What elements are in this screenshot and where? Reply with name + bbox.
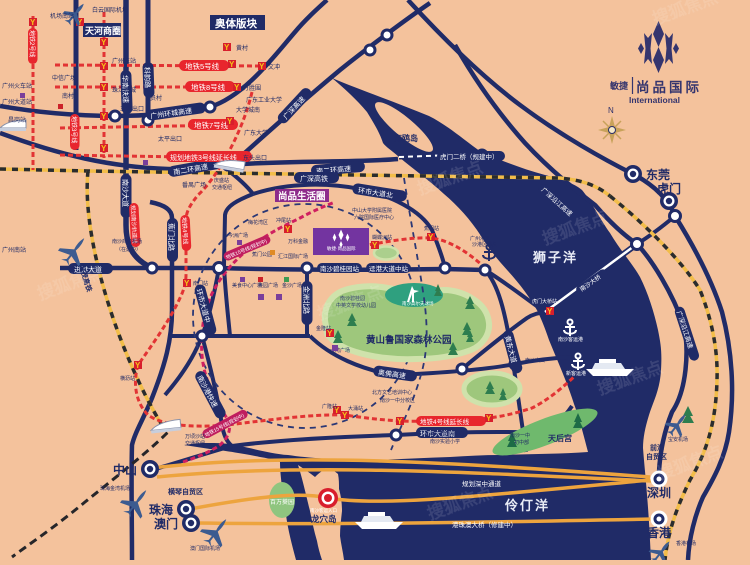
svg-text:尚品生活圈: 尚品生活圈 <box>278 191 326 203</box>
svg-text:蕉门站: 蕉门站 <box>424 225 439 232</box>
svg-text:新客运港: 新客运港 <box>566 370 586 377</box>
svg-text:广州港南: 广州港南 <box>470 235 490 242</box>
svg-text:南沙一中分校区: 南沙一中分校区 <box>380 397 415 404</box>
svg-text:N: N <box>608 106 614 115</box>
svg-text:地铁8号线: 地铁8号线 <box>191 82 226 92</box>
svg-text:中信广场: 中信广场 <box>52 74 76 82</box>
svg-text:南沙实验小学: 南沙实验小学 <box>430 438 460 445</box>
svg-text:Y: Y <box>486 414 492 423</box>
svg-text:敏捷·尚品国际: 敏捷·尚品国际 <box>327 245 356 252</box>
svg-text:横沥站: 横沥站 <box>120 375 135 382</box>
svg-text:昌岗站: 昌岗站 <box>8 116 26 124</box>
svg-text:南沙出口: 南沙出口 <box>525 357 545 364</box>
svg-text:Y: Y <box>234 83 240 92</box>
svg-text:沙港区码头: 沙港区码头 <box>472 241 497 248</box>
svg-text:万顷沙站: 万顷沙站 <box>185 433 205 440</box>
svg-text:虎门大桥站: 虎门大桥站 <box>532 298 557 305</box>
svg-text:南沙客运港: 南沙客运港 <box>558 336 583 343</box>
svg-text:初中部: 初中部 <box>514 439 529 446</box>
svg-text:Y: Y <box>229 60 235 69</box>
svg-text:香港: 香港 <box>646 525 672 540</box>
svg-text:南沙碧桂园站: 南沙碧桂园站 <box>320 264 360 273</box>
svg-text:（在建中）: （在建中） <box>116 246 141 253</box>
svg-text:Y: Y <box>101 144 107 153</box>
svg-text:广州火车站: 广州火车站 <box>2 82 32 90</box>
svg-text:Y: Y <box>547 307 553 316</box>
svg-text:梅花湾区: 梅花湾区 <box>248 219 268 226</box>
svg-text:虎门: 虎门 <box>657 181 681 196</box>
svg-text:伶仃洋: 伶仃洋 <box>504 498 550 513</box>
svg-text:金洲北路: 金洲北路 <box>302 286 311 314</box>
svg-text:自贸区: 自贸区 <box>646 452 667 461</box>
svg-text:广隆站: 广隆站 <box>322 403 337 410</box>
svg-text:今洲广场: 今洲广场 <box>228 232 248 239</box>
svg-text:Y: Y <box>227 117 233 126</box>
svg-text:金沙广场: 金沙广场 <box>282 282 302 289</box>
svg-text:东莞: 东莞 <box>646 167 670 182</box>
svg-text:虎门二桥（规建中）: 虎门二桥（规建中） <box>440 152 499 161</box>
svg-text:地铁4号线延长线: 地铁4号线延长线 <box>420 417 470 426</box>
svg-text:蝴蝶洲站: 蝴蝶洲站 <box>372 234 392 241</box>
svg-text:南沙客运入口: 南沙客运入口 <box>310 507 337 514</box>
svg-text:Y: Y <box>184 279 190 288</box>
svg-text:黄村: 黄村 <box>236 44 248 52</box>
svg-text:海鸥岛: 海鸥岛 <box>394 133 418 143</box>
svg-text:北方文艺培训中心: 北方文艺培训中心 <box>424 430 464 437</box>
svg-text:地铁2号线: 地铁2号线 <box>28 30 36 57</box>
svg-text:南沙大道: 南沙大道 <box>121 179 130 207</box>
svg-text:南门站: 南门站 <box>193 280 208 287</box>
svg-text:深圳: 深圳 <box>647 485 671 500</box>
svg-text:Y: Y <box>101 38 107 47</box>
svg-text:冲尾站: 冲尾站 <box>276 217 291 224</box>
svg-text:中山: 中山 <box>113 462 137 477</box>
svg-text:员村: 员村 <box>150 94 162 102</box>
svg-text:奥体版块: 奥体版块 <box>215 17 257 30</box>
svg-text:广东工业大学: 广东工业大学 <box>246 96 282 104</box>
svg-text:天河商圈: 天河商圈 <box>85 25 121 36</box>
svg-text:Y: Y <box>135 361 141 370</box>
svg-text:珠江新城: 珠江新城 <box>112 86 136 94</box>
svg-text:中山大学附属医院: 中山大学附属医院 <box>352 207 392 214</box>
svg-text:宝安机场: 宝安机场 <box>668 436 688 443</box>
svg-text:东头出口: 东头出口 <box>243 154 267 162</box>
svg-text:南沙高尔夫球场: 南沙高尔夫球场 <box>402 300 434 307</box>
svg-text:广东大学: 广东大学 <box>244 129 268 137</box>
svg-text:广州东站: 广州东站 <box>112 57 136 65</box>
svg-text:金隆站: 金隆站 <box>316 325 331 332</box>
svg-text:黄山鲁国家森林公园: 黄山鲁国家森林公园 <box>366 334 452 346</box>
svg-text:香港机场: 香港机场 <box>676 540 696 547</box>
svg-text:狮子洋: 狮子洋 <box>532 250 578 265</box>
svg-text:南沙商务机场: 南沙商务机场 <box>112 238 142 245</box>
svg-text:International: International <box>629 95 680 105</box>
svg-text:天后宫: 天后宫 <box>548 433 572 443</box>
svg-text:广州大道站: 广州大道站 <box>2 98 32 106</box>
svg-text:广深高铁: 广深高铁 <box>300 174 328 183</box>
svg-text:Y: Y <box>101 112 107 121</box>
svg-text:汇江国际广场: 汇江国际广场 <box>278 253 308 260</box>
svg-text:Y: Y <box>30 18 36 27</box>
svg-text:Y: Y <box>372 241 378 250</box>
svg-text:大涌站: 大涌站 <box>348 405 363 412</box>
svg-text:Y: Y <box>397 417 403 426</box>
svg-text:百万葵园: 百万葵园 <box>270 498 294 506</box>
svg-text:大学城南: 大学城南 <box>236 106 260 114</box>
svg-text:敏捷: 敏捷 <box>609 80 629 91</box>
svg-text:文冲: 文冲 <box>268 63 280 71</box>
svg-text:三溪出口: 三溪出口 <box>120 105 144 113</box>
svg-text:交通枢纽: 交通枢纽 <box>185 440 205 447</box>
svg-text:迳港大道中站: 迳港大道中站 <box>369 264 409 273</box>
svg-text:珠海金湾机场: 珠海金湾机场 <box>100 485 130 492</box>
svg-text:Y: Y <box>101 83 107 92</box>
svg-text:龙穴岛: 龙穴岛 <box>310 514 337 524</box>
svg-text:澳门国际机场: 澳门国际机场 <box>190 545 220 552</box>
svg-text:地铁5号线: 地铁5号线 <box>185 61 220 71</box>
svg-text:横琴自贸区: 横琴自贸区 <box>168 487 203 496</box>
svg-text:Y: Y <box>101 62 107 71</box>
svg-text:交通枢纽: 交通枢纽 <box>212 184 232 191</box>
svg-text:Y: Y <box>342 411 348 420</box>
svg-text:南村: 南村 <box>62 92 74 100</box>
svg-text:万胜围: 万胜围 <box>243 84 261 92</box>
svg-text:尚品国际: 尚品国际 <box>636 79 702 95</box>
svg-text:港珠澳大桥（修建中）: 港珠澳大桥（修建中） <box>452 520 517 529</box>
svg-text:地铁3号线: 地铁3号线 <box>70 116 78 143</box>
svg-text:番禺广场: 番禺广场 <box>182 181 206 189</box>
svg-text:北方文艺培训中心: 北方文艺培训中心 <box>372 389 412 396</box>
svg-text:珠海: 珠海 <box>149 502 173 517</box>
svg-text:庆盛站: 庆盛站 <box>214 177 229 184</box>
svg-text:蕉门北路: 蕉门北路 <box>167 223 176 251</box>
svg-text:Y: Y <box>428 233 434 242</box>
svg-text:蕉门公园: 蕉门公园 <box>252 251 272 258</box>
svg-text:机场南站: 机场南站 <box>50 12 74 20</box>
svg-text:奥园广场: 奥园广场 <box>258 282 278 289</box>
svg-text:广州南站: 广州南站 <box>2 246 26 254</box>
svg-text:万科金融: 万科金融 <box>288 238 308 245</box>
svg-text:Y: Y <box>259 62 265 71</box>
svg-text:澳门: 澳门 <box>154 516 178 531</box>
svg-text:六院国际医疗中心: 六院国际医疗中心 <box>354 214 394 221</box>
svg-text:Y: Y <box>224 43 230 52</box>
svg-text:前海: 前海 <box>650 443 664 452</box>
svg-text:地铁7号线: 地铁7号线 <box>194 120 229 130</box>
svg-text:白云国际机场: 白云国际机场 <box>92 6 128 14</box>
svg-text:太平出口: 太平出口 <box>158 135 182 143</box>
svg-text:南沙一中: 南沙一中 <box>510 432 530 439</box>
svg-text:Y: Y <box>285 225 291 234</box>
